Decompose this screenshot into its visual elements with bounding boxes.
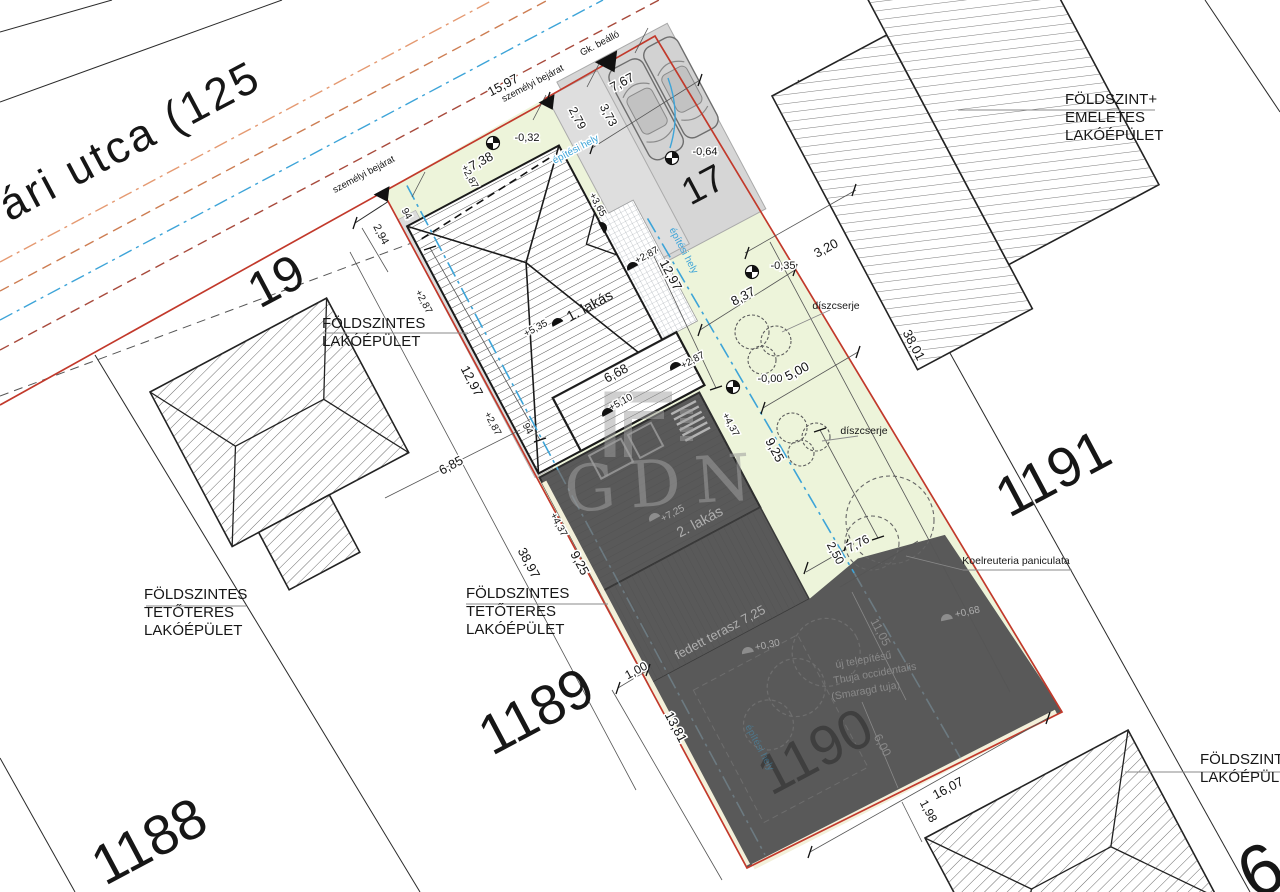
watermark-layer: GDN (562, 440, 767, 528)
site-plan-canvas: Kolozsvári utca (125 1917118811891190119… (0, 0, 1280, 892)
level-marker (487, 137, 500, 150)
level: -0,32 (514, 132, 539, 144)
label-groundfloor-house-1: FÖLDSZINTES (322, 314, 425, 332)
label-groundfloor-house-2: LAKÓÉPÜLET (322, 332, 420, 350)
level-marker (727, 381, 740, 394)
label-shrub-1: díszcserje (812, 300, 859, 312)
watermark-text: GDN (562, 440, 767, 528)
level-marker (666, 152, 679, 165)
label-attic-house-mid-2: TETŐTERES (466, 603, 556, 620)
label-attic-house-left-1: FÖLDSZINTES (144, 585, 247, 603)
label-groundfloor-br-2: LAKÓÉPÜLET (1200, 768, 1280, 786)
label-koelreuteria: Koelreuteria paniculata (962, 555, 1070, 567)
label-storey-house-2: EMELETES (1065, 109, 1145, 126)
label-storey-house-1: FÖLDSZINT+ (1065, 90, 1157, 108)
label-attic-house-left-3: LAKÓÉPÜLET (144, 621, 242, 639)
label-groundfloor-br-1: FÖLDSZINTES (1200, 750, 1280, 768)
level: -0,35 (770, 260, 795, 272)
label-storey-house-3: LAKÓÉPÜLET (1065, 126, 1163, 144)
label-attic-house-mid-1: FÖLDSZINTES (466, 584, 569, 602)
level: -0,00 (757, 373, 782, 385)
level-marker (746, 266, 759, 279)
site-plan-drawing: Kolozsvári utca (125 1917118811891190119… (0, 0, 1280, 892)
label-shrub-2: díszcserje (840, 425, 887, 437)
level: -0,64 (692, 146, 717, 158)
label-attic-house-mid-3: LAKÓÉPÜLET (466, 620, 564, 638)
label-attic-house-left-2: TETŐTERES (144, 604, 234, 621)
